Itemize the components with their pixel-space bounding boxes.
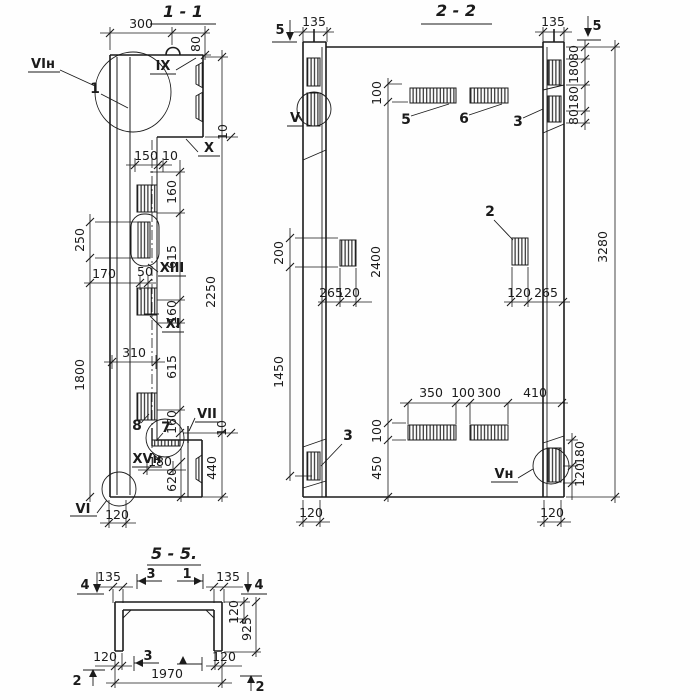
s2-dim-foot-120-left: 120 — [299, 505, 323, 520]
s2-dim-100-bottom: 100 — [369, 419, 384, 443]
s2-dim-2400: 2400 — [368, 246, 383, 278]
s2-dim-120-left: 120 — [336, 285, 360, 300]
engineering-drawing-sheet: 1 - 1 300 80 VIн 1 IX 10 X 150 10 160 61… — [0, 0, 700, 700]
s1-dim-180: 180 — [148, 454, 172, 469]
s1-callout-1: 1 — [90, 81, 100, 97]
s1-dim-50: 50 — [137, 264, 153, 279]
s2-callout-2: 2 — [485, 204, 495, 220]
s1-title: 1 - 1 — [163, 2, 203, 21]
s5-cut-mark-1-top: 1 — [182, 567, 191, 582]
s2-leaders — [272, 16, 601, 482]
s2-dim-350: 350 — [419, 385, 443, 400]
s1-callout-8: 8 — [132, 418, 142, 434]
s2-callout-3-top: 3 — [513, 114, 523, 130]
s2-dim-80b: 80 — [566, 109, 581, 125]
s1-embedded-parts — [131, 185, 188, 446]
drawing-svg: 1 - 1 300 80 VIн 1 IX 10 X 150 10 160 61… — [0, 0, 700, 700]
s2-dim-135-left: 135 — [302, 14, 326, 29]
s1-dim-2250: 2250 — [203, 276, 218, 308]
s5-dim-135-right: 135 — [216, 569, 240, 584]
s2-dim-180a: 180 — [566, 60, 581, 84]
s5-cut-mark-4-right: 4 — [254, 578, 263, 593]
s5-dim-120-bottom-left: 120 — [93, 649, 117, 664]
s1-mark-vi-n: VIн — [31, 57, 55, 72]
s5-cut-mark-3-bottom: 3 — [143, 649, 152, 664]
s2-dim-100-top: 100 — [369, 81, 384, 105]
s5-dim-1970: 1970 — [151, 666, 183, 681]
s2-cut-mark-5-right: 5 — [592, 19, 601, 34]
s1-mark-vii: VII — [197, 407, 217, 422]
s5-dim-120-bottom-right: 120 — [212, 649, 236, 664]
s1-dim-440: 440 — [204, 456, 219, 480]
s1-dim-80: 80 — [188, 36, 203, 52]
s2-dim-180-bottom: 180 — [572, 441, 587, 465]
s2-callout-3-bottom: 3 — [343, 428, 353, 444]
s1-mark-x: X — [204, 141, 214, 156]
section-1-1: 1 - 1 300 80 VIн 1 IX 10 X 150 10 160 61… — [28, 2, 238, 528]
s2-dim-265-right: 265 — [534, 285, 558, 300]
s1-dim-170: 170 — [92, 266, 116, 281]
s1-mark-ix: IX — [156, 59, 171, 74]
s2-cut-mark-5-left: 5 — [275, 23, 284, 38]
s2-callout-6: 6 — [459, 111, 469, 127]
s2-dim-foot-120-right: 120 — [540, 505, 564, 520]
s1-dim-620: 620 — [164, 468, 179, 492]
s2-dim-3280: 3280 — [595, 231, 610, 263]
s2-dim-135-right: 135 — [541, 14, 565, 29]
s5-corner-haunches — [123, 610, 214, 618]
s2-callout-5: 5 — [401, 112, 411, 128]
s2-dim-410: 410 — [523, 385, 547, 400]
s1-dim-160a: 160 — [164, 180, 179, 204]
s5-channel-outline — [115, 602, 222, 651]
s5-cut-mark-3-top: 3 — [146, 567, 155, 582]
s5-dim-925: 925 — [239, 617, 254, 641]
s5-cut-mark-2-left: 2 — [72, 674, 81, 689]
s2-cut-arrowheads — [286, 28, 592, 41]
s1-dim-10b: 10 — [162, 148, 178, 163]
s1-dim-150: 150 — [134, 148, 158, 163]
s5-dim-ticks — [109, 583, 260, 687]
s5-cut-mark-2-right: 2 — [255, 680, 264, 695]
s1-dim-310: 310 — [122, 345, 146, 360]
s1-callout-7: 7 — [161, 420, 171, 436]
s1-mark-xiii: XIII — [160, 261, 185, 276]
s5-cut-mark-4-left: 4 — [80, 578, 89, 593]
s1-dim-10c: 10 — [214, 420, 229, 436]
s2-dim-120-right: 120 — [507, 285, 531, 300]
s1-panel-inner-lines — [117, 57, 203, 497]
s2-dim-1450: 1450 — [271, 356, 286, 388]
s2-mark-v-n: Vн — [494, 467, 513, 482]
section-5-5: 5 - 5. 4 135 3 1 135 4 120 925 120 3 120… — [72, 544, 267, 695]
s1-dim-615b: 615 — [164, 355, 179, 379]
s2-dim-300: 300 — [477, 385, 501, 400]
s2-dim-450: 450 — [369, 456, 384, 480]
s2-title: 2 - 2 — [436, 1, 476, 20]
s2-dim-200: 200 — [271, 241, 286, 265]
s1-dim-120: 120 — [105, 507, 129, 522]
s1-dim-1800: 1800 — [72, 359, 87, 391]
s2-embedded-parts — [307, 58, 561, 482]
s5-title: 5 - 5. — [151, 544, 197, 563]
s1-mark-xi: XI — [166, 317, 181, 332]
s2-dim-120-bottom: 120 — [572, 463, 587, 487]
s2-dim-180b: 180 — [566, 86, 581, 110]
s2-dim-80a: 80 — [566, 45, 581, 61]
s1-leaders — [28, 24, 220, 516]
s1-dim-10-top: 10 — [215, 124, 230, 140]
s1-mark-vi: VI — [76, 502, 91, 517]
s5-dim-135-left: 135 — [97, 569, 121, 584]
s1-dim-300: 300 — [129, 16, 153, 31]
s2-dim-100-mid: 100 — [451, 385, 475, 400]
s2-mark-v: V — [290, 111, 300, 126]
section-2-2: 2 - 2 135 135 5 5 80 180 180 80 3280 V 5… — [271, 1, 620, 527]
s1-dim-250: 250 — [72, 228, 87, 252]
